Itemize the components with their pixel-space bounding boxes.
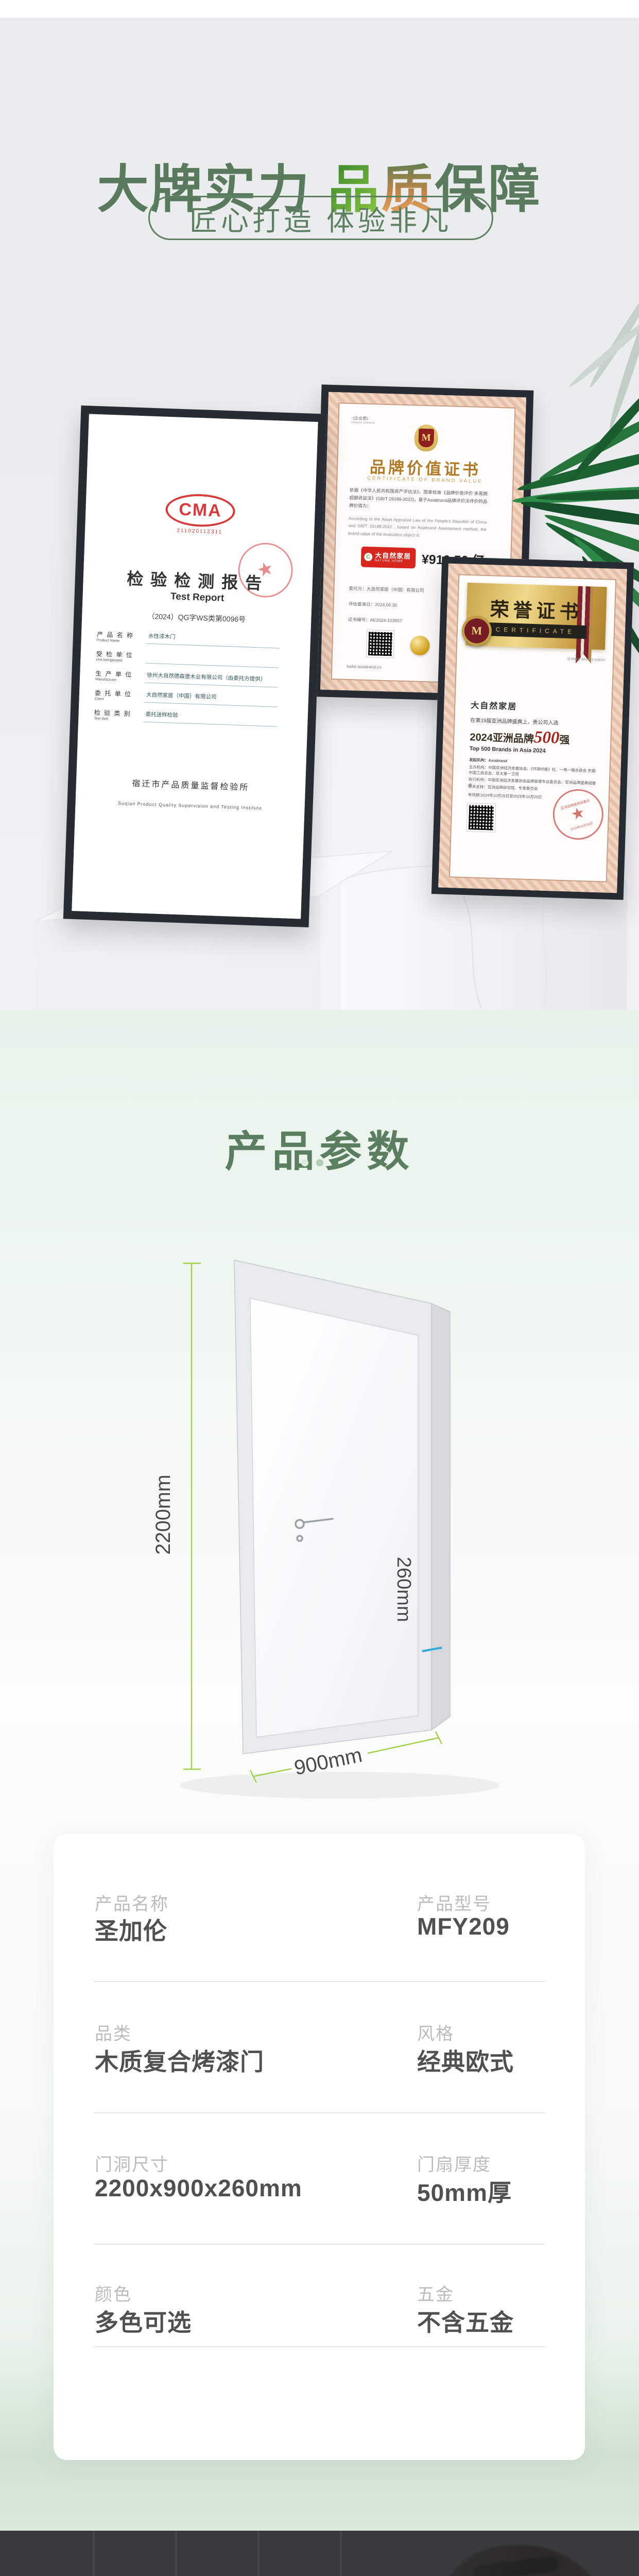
hero-subtitle: 匠心打造 体验非凡 (189, 198, 452, 239)
product-detail-page: 大牌实力 品质保障 匠心打造 体验非凡 CMA 211020112311 检验检… (0, 0, 639, 2576)
divider (94, 1981, 545, 1982)
hero-subtitle-pill: 匠心打造 体验非凡 (148, 196, 493, 240)
param-value: 经典欧式 (417, 2043, 514, 2077)
honor-paper: 荣誉证书 CERTIFICATE M 证书编号:BP2024-100047 大自… (449, 574, 616, 882)
award-post: 强 (559, 735, 570, 747)
param-label: 门洞尺寸 (95, 2150, 169, 2176)
badge-letter: M (418, 429, 434, 448)
gold-seal-icon (410, 635, 430, 655)
honor-brand: 大自然家居 (471, 698, 517, 712)
param-label: 五金 (417, 2280, 454, 2306)
test-report-field-row: 检 验 类 别Test Sort 委托送样检验 (94, 708, 277, 726)
certificate-honor: 荣誉证书 CERTIFICATE M 证书编号:BP2024-100047 大自… (431, 556, 634, 900)
param-value: 2200x900x260mm (95, 2174, 302, 2202)
dot-medium (316, 1159, 323, 1166)
honor-cert-number: 证书编号:BP2024-100047 (567, 656, 606, 662)
param-value: 木质复合烤漆门 (95, 2043, 264, 2077)
test-report-field-row: 产 品 名 称Product Name 水性漆木门 (97, 630, 280, 648)
divider (94, 2244, 545, 2245)
verify-site-line: baike.asiabrand.cn (347, 664, 381, 670)
background-bands (93, 2531, 381, 2576)
params-card: 产品名称 圣加伦 产品型号 MFY209 品类 木质复合烤漆门 风格 经典欧式 … (54, 1834, 585, 2460)
award-pre: 2024亚洲品牌 (470, 732, 534, 745)
field-value (145, 651, 279, 668)
param-label: 品类 (95, 2020, 132, 2045)
param-value: 多色可选 (95, 2304, 192, 2338)
test-report-fields: 产 品 名 称Product Name 水性漆木门 受 检 单 位Unit be… (94, 630, 280, 734)
category-note: ·(企业类)·Category: Enterprise (351, 415, 375, 425)
test-report-paper: CMA 211020112311 检验检测报告 Test Report （202… (72, 414, 318, 919)
product-params-section: 产品参数 (0, 1010, 639, 2531)
door-frame-depth (431, 1303, 450, 1730)
door-height-label: 2200mm (152, 1475, 175, 1555)
nature-home-c-icon: C (364, 553, 372, 561)
cma-logo: CMA 211020112311 (85, 490, 315, 538)
field-value: 大自然家居（中国）有限公司 (144, 690, 278, 707)
dot-dark (331, 1159, 338, 1166)
divider (94, 2112, 545, 2113)
param-label: 风格 (417, 2020, 454, 2045)
certificate-number-line: 证书编号：AE2024-102657 (348, 616, 402, 624)
door-dimension-diagram: 2200mm 260mm 900mm (0, 1185, 639, 1829)
param-value: MFY209 (417, 1912, 510, 1940)
service-section: 金保姆服务 全国1000+实体门店支持 咨询下单 上 (0, 2531, 639, 2576)
client-line: 委托方：大自然家居（中国）有限公司 (349, 585, 424, 594)
height-dimension-line (183, 1263, 201, 1769)
award-number: 500 (533, 728, 560, 748)
field-value: 委托送样检验 (143, 710, 277, 727)
hero-section: 大牌实力 品质保障 匠心打造 体验非凡 CMA 211020112311 检验检… (0, 0, 639, 1010)
test-report-field-row: 生 产 单 位Manufacturer 徐州大自然德森堡木业有限公司（由委托方提… (95, 669, 279, 687)
institute-name-en: Suqian Product Quality Supervision and T… (76, 799, 305, 812)
test-report-field-row: 受 检 单 位Unit beingtested (96, 649, 279, 668)
params-title: 产品参数 (0, 1117, 639, 1178)
red-stamp-icon: 亚洲品牌盛典组委会 ★ 2024年10月26日 (547, 783, 609, 845)
test-report-field-row: 委 托 单 位Client 大自然家居（中国）有限公司 (95, 688, 278, 707)
cma-text: CMA (165, 493, 236, 528)
certificate-test-report: CMA 211020112311 检验检测报告 Test Report （202… (63, 405, 327, 927)
dot-light (301, 1159, 308, 1166)
param-label: 门扇厚度 (417, 2150, 491, 2176)
nature-home-logo: C 大自然家居NATURE HOME (361, 547, 416, 569)
honor-title-en: CERTIFICATE (485, 622, 587, 639)
category-en: Category: Enterprise (351, 421, 375, 425)
ornate-border: 荣誉证书 CERTIFICATE M 证书编号:BP2024-100047 大自… (438, 564, 627, 893)
field-value: 水性漆木门 (146, 632, 280, 649)
gold-badge-icon: M (414, 424, 438, 451)
door-leaf (250, 1298, 418, 1737)
field-value: 徐州大自然德森堡木业有限公司（由委托方提供） (145, 671, 279, 688)
stamp-star-icon: ★ (254, 556, 277, 582)
param-label: 颜色 (95, 2280, 132, 2306)
institute-name: 宿迁市产品质量监督检验所 (76, 774, 306, 795)
stamp-star-icon: ★ (569, 803, 588, 824)
title-dots-icon (0, 1159, 639, 1166)
param-value: 50mm厚 (417, 2174, 512, 2208)
param-value: 圣加伦 (95, 1912, 167, 1946)
divider (94, 2346, 545, 2347)
cma-number: 211020112311 (85, 524, 314, 538)
param-label: 产品名称 (95, 1890, 169, 1915)
qr-code (467, 803, 496, 832)
param-label: 产品型号 (417, 1890, 491, 1915)
test-report-number: （2024）QG字WS类第0096号 (82, 608, 311, 627)
category-cn: ·(企业类)· (352, 416, 370, 421)
photo-dark-overlay (371, 2531, 639, 2576)
door-depth-label: 260mm (393, 1557, 415, 1622)
valuation-date-line: 评估基准日：2024.06.30 (349, 601, 398, 608)
honor-validity: 有效期:2024年10月26日至2025年10月25日 (468, 792, 542, 800)
param-value: 不含五金 (417, 2304, 514, 2338)
honor-line1: 在第19届亚洲品牌盛典上，贵公司入选 (470, 716, 559, 726)
qr-code (367, 630, 394, 657)
door-shadow (180, 1772, 499, 1799)
